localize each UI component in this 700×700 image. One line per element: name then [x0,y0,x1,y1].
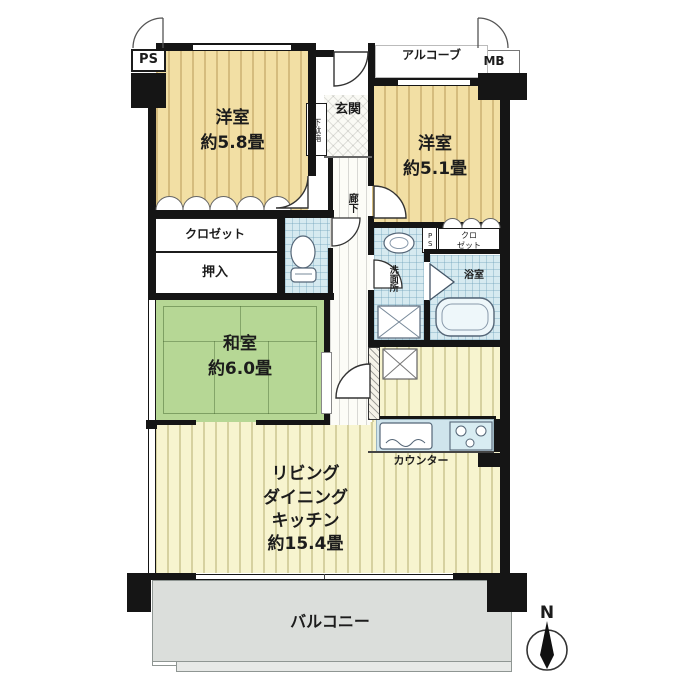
wall [328,157,333,218]
room-5-1-label: 洋室 約5.1畳 [370,128,500,186]
senmenjo-label: 洗面所 [384,252,400,304]
closet-right-label: クロ ゼット [439,229,499,252]
washitsu-label: 和室 約6.0畳 [163,328,317,386]
wall [328,248,333,294]
oshiire-label: 押入 [152,254,278,292]
wall [278,218,285,294]
mb-label: MB [468,51,520,73]
wall [151,573,196,580]
toilet-floor [285,218,330,294]
window-washitsu-left [148,300,156,420]
room-5-8-label: 洋室 約5.8畳 [160,102,305,160]
pier-bottom-right [487,573,527,612]
ps-label: PS [131,49,166,72]
rouka-label: 廊下 [343,182,359,224]
window-living-left [148,429,156,573]
genkan-label: 玄関 [324,100,372,120]
kitchen-counter [376,419,494,452]
counter-back-line [374,416,496,419]
wall [424,253,430,262]
wall [368,228,374,255]
closet-left-label: クロゼット [152,220,278,250]
window-room51 [398,79,470,86]
entrance-door-arc [334,52,368,86]
wall [150,420,196,425]
wall [148,210,334,218]
wall [368,340,500,347]
yokushitsu-label: 浴室 [446,268,502,284]
wall-right [500,100,510,573]
washitsu-sliding-doors [321,352,332,414]
wall [368,290,374,342]
pier-bottom-left [127,573,151,612]
window-room58 [193,44,291,51]
wall [372,222,500,228]
counter-end-block [478,453,500,467]
genkan-step-line [324,156,372,158]
getabako-label: 下駄箱 [308,106,325,154]
balcony-step [152,662,176,666]
balcony-label: バルコニー [250,610,410,634]
wall [424,300,430,342]
duct-hatch-strip [368,347,380,420]
wall [256,420,324,425]
ps-small-label: PS [423,228,436,251]
ldk-label: リビング ダイニング キッチン 約15.4畳 [228,460,383,560]
wall [494,419,500,452]
kitchen-floor [372,347,500,422]
wall [453,573,488,580]
north-compass [527,621,567,670]
north-label: N [533,603,561,623]
pier-top-right [478,73,527,100]
wall [148,293,334,300]
door-arc-neighbor-right [478,18,508,48]
sash-tick [324,574,325,579]
floor-plan: PS アルコーブ MB 洋室 約5.8畳 洋室 約5.1畳 下駄箱 玄関 廊下 … [0,0,700,700]
balcony-outer-rail [176,662,512,672]
